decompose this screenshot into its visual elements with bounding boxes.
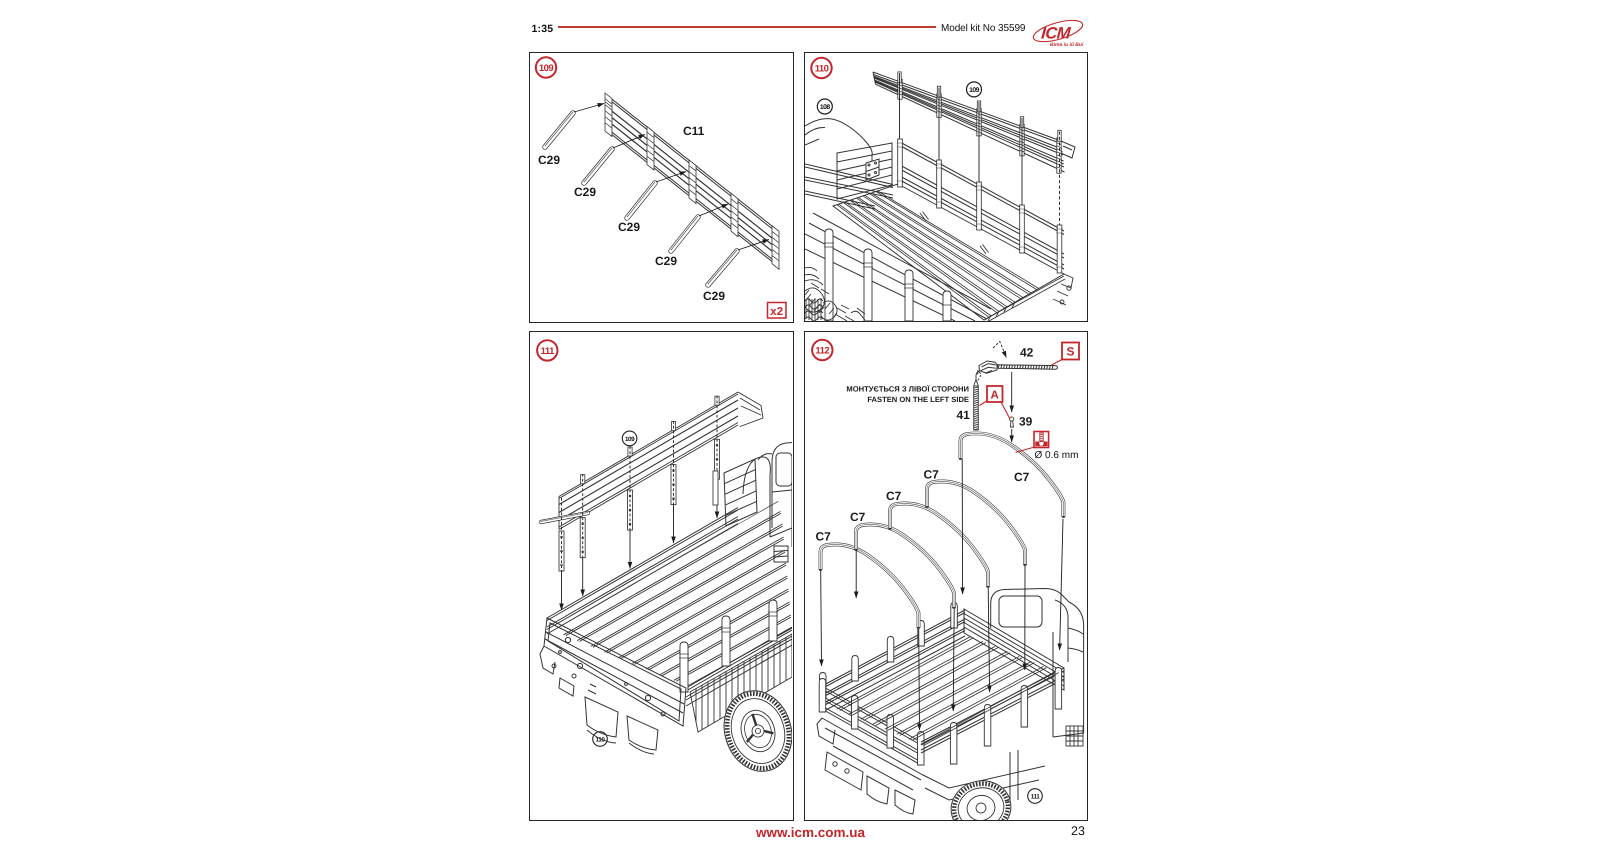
svg-text:C29: C29: [538, 153, 560, 167]
svg-text:x2: x2: [770, 306, 783, 318]
svg-text:C11: C11: [683, 124, 705, 138]
svg-text:109: 109: [969, 87, 980, 94]
svg-text:112: 112: [815, 346, 829, 357]
svg-text:111: 111: [1031, 794, 1041, 801]
svg-text:41: 41: [957, 408, 971, 422]
svg-text:C29: C29: [655, 254, 677, 268]
svg-text:108: 108: [820, 104, 831, 111]
svg-text:C7: C7: [816, 530, 832, 544]
svg-text:A: A: [991, 390, 999, 402]
svg-text:109: 109: [539, 63, 554, 74]
svg-text:C29: C29: [618, 220, 640, 234]
svg-text:C29: C29: [574, 185, 596, 199]
svg-text:Віта іи ій Виі: Віта іи ій Виі: [1050, 42, 1084, 48]
svg-text:C7: C7: [850, 510, 866, 524]
svg-text:109: 109: [625, 436, 635, 443]
svg-text:S: S: [1066, 345, 1074, 359]
svg-text:C7: C7: [886, 489, 902, 503]
svg-text:C7: C7: [924, 468, 940, 482]
svg-text:C7: C7: [1014, 470, 1030, 484]
svg-text:C29: C29: [703, 289, 725, 303]
svg-text:Ø 0.6 mm: Ø 0.6 mm: [1035, 450, 1079, 461]
svg-text:ICM: ICM: [1041, 25, 1073, 43]
svg-text:FASTEN ON THE LEFT SIDE: FASTEN ON THE LEFT SIDE: [867, 395, 969, 404]
svg-text:42: 42: [1020, 345, 1034, 359]
svg-text:111: 111: [541, 346, 556, 357]
svg-text:110: 110: [815, 63, 829, 74]
svg-text:39: 39: [1019, 414, 1033, 428]
svg-text:МОНТУЄТЬСЯ З ЛІВОЇ СТОРОНИ: МОНТУЄТЬСЯ З ЛІВОЇ СТОРОНИ: [846, 385, 969, 394]
